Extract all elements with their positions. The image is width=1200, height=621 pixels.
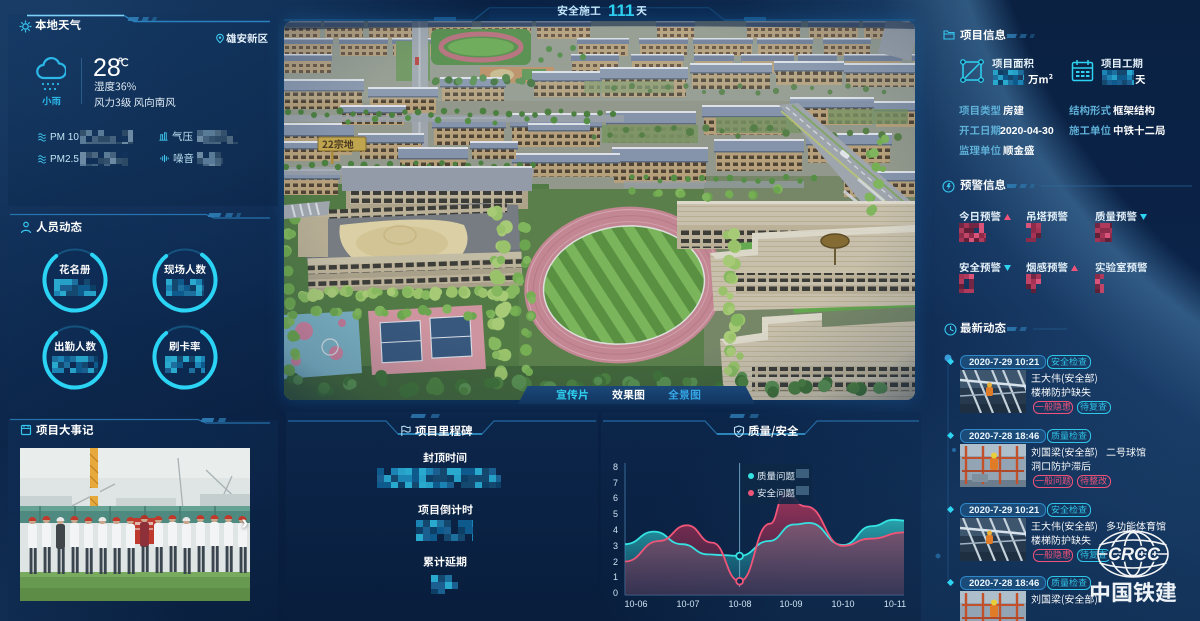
svg-text:3: 3 [613,541,618,551]
svg-text:6: 6 [613,493,618,503]
svg-text:1: 1 [613,572,618,582]
svg-text:10-06: 10-06 [624,599,647,609]
svg-text:8: 8 [613,462,618,472]
svg-text:4: 4 [613,525,618,535]
svg-text:10-11: 10-11 [884,599,906,609]
svg-text:2: 2 [613,557,618,567]
svg-text:10-09: 10-09 [779,599,802,609]
svg-text:10-08: 10-08 [728,599,751,609]
svg-text:10-10: 10-10 [831,599,854,609]
svg-text:5: 5 [613,509,618,519]
svg-text:0: 0 [613,588,618,598]
svg-text:7: 7 [613,478,618,488]
svg-text:10-07: 10-07 [676,599,699,609]
